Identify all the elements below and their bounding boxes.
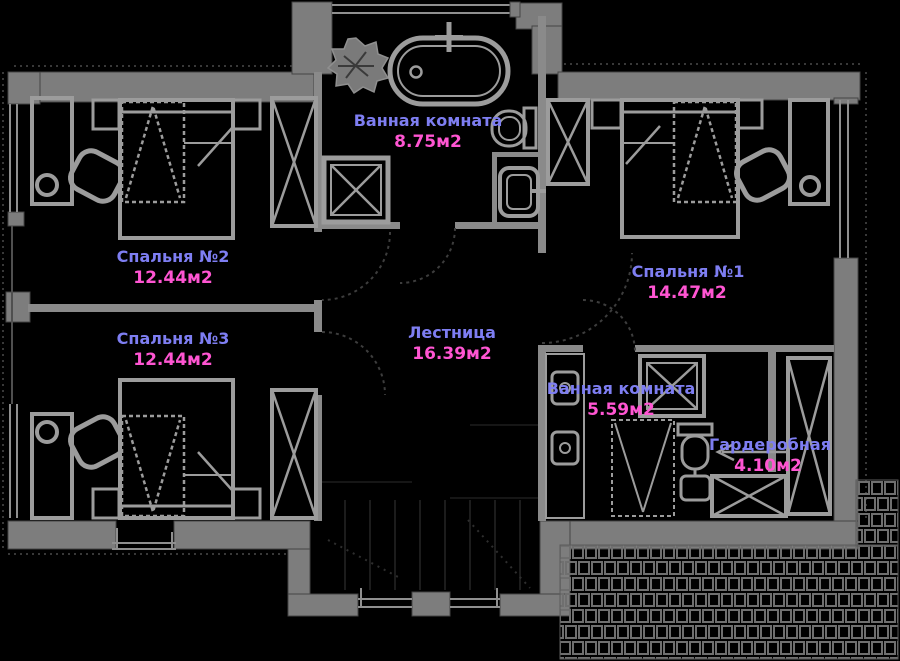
label-staircase: Лестница 16.39м2 <box>408 323 496 364</box>
label-bedroom-3: Спальня №3 12.44м2 <box>117 329 230 370</box>
room-name: Лестница <box>408 323 496 342</box>
room-area: 16.39м2 <box>412 344 492 364</box>
room-name: Спальня №2 <box>117 247 230 266</box>
room-name: Ванная комната <box>354 111 503 130</box>
bed-icon <box>622 100 738 237</box>
label-bedroom-2: Спальня №2 12.44м2 <box>117 247 230 288</box>
room-name: Спальня №1 <box>632 262 745 281</box>
bed-icon <box>120 380 233 518</box>
room-area: 12.44м2 <box>133 268 213 288</box>
room-area: 8.75м2 <box>394 132 462 152</box>
room-area: 12.44м2 <box>133 350 213 370</box>
room-name: Гардеробная <box>709 435 831 454</box>
room-name: Ванная комната <box>547 379 696 398</box>
room-area: 14.47м2 <box>647 283 727 303</box>
floor-plan-drawing: Ванная комната 8.75м2 Спальня №2 12.44м2… <box>0 0 900 661</box>
room-area: 5.59м2 <box>587 400 655 420</box>
floor-plan: Ванная комната 8.75м2 Спальня №2 12.44м2… <box>0 0 900 661</box>
room-name: Спальня №3 <box>117 329 230 348</box>
room-area: 4.10м2 <box>734 456 802 476</box>
bed-icon <box>120 100 233 238</box>
